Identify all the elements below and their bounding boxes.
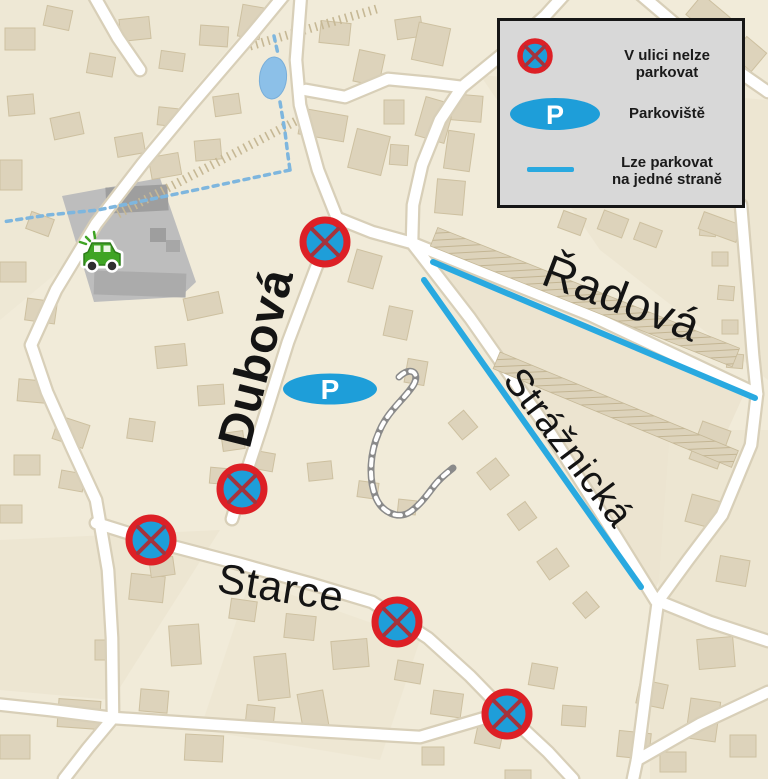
legend-one-side-label-line2: na jedné straně	[592, 171, 742, 188]
no-parking-marker-5	[485, 692, 529, 736]
legend-one-side-line-icon	[527, 167, 574, 172]
no-parking-marker-4	[375, 600, 419, 644]
legend-parking-label: Parkoviště	[592, 105, 742, 122]
legend-one-side-label: Lze parkovat na jedné straně	[592, 154, 742, 188]
no-parking-marker-2	[220, 467, 264, 511]
legend-no-parking-label: V ulici nelze parkovat	[592, 47, 742, 81]
parking-map: P DubováŘadováStrážnickáStarce V ulici n…	[0, 0, 768, 779]
legend-parking-symbol: P	[546, 100, 564, 130]
legend-parking-icon: P	[508, 96, 602, 132]
legend: V ulici nelze parkovat P Parkoviště Lze …	[497, 18, 745, 208]
legend-one-side-label-line1: Lze parkovat	[592, 154, 742, 171]
no-parking-marker-1	[303, 220, 347, 264]
svg-text:P: P	[321, 374, 340, 405]
legend-no-parking-icon	[513, 34, 557, 78]
no-parking-marker-3	[129, 518, 173, 562]
car-icon	[74, 228, 130, 280]
